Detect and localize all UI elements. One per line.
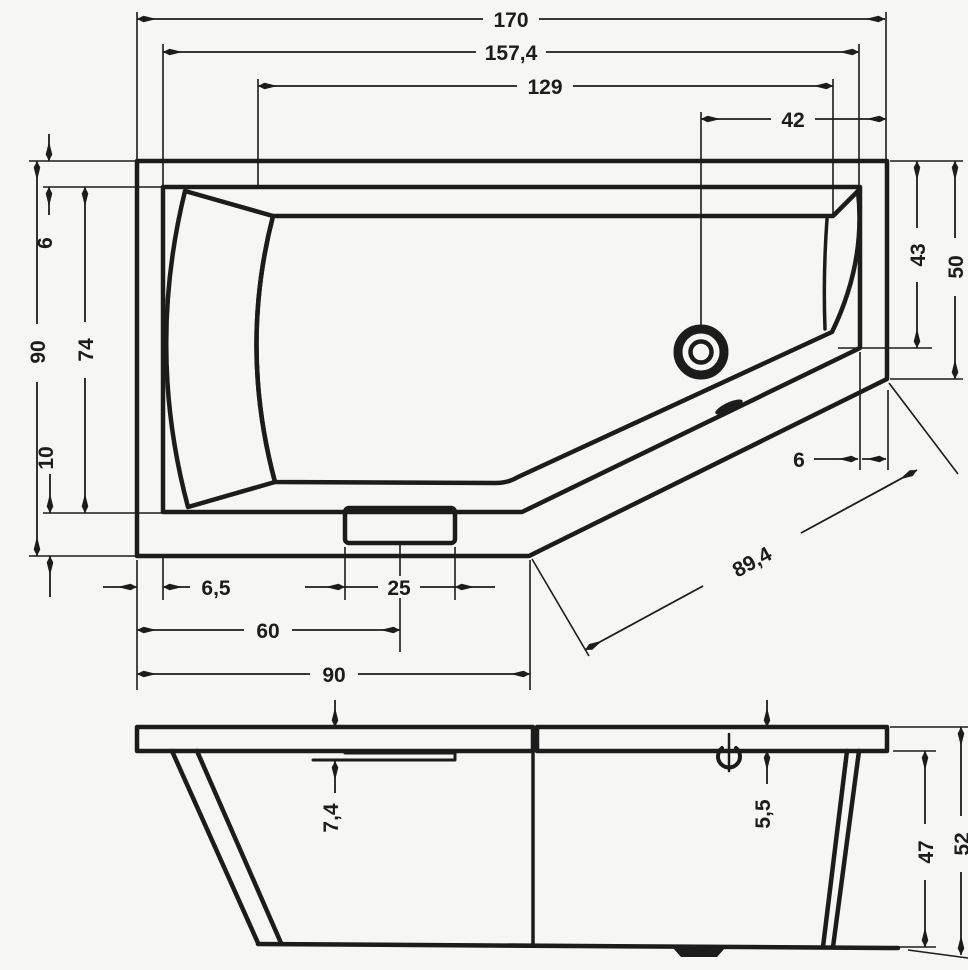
plan-view	[137, 161, 887, 556]
dim-60-label: 60	[256, 620, 279, 643]
dim-plate-center: 60	[137, 619, 400, 643]
dim-170-label: 170	[493, 9, 528, 32]
drain-inner-ring	[691, 342, 712, 363]
dim-157-label: 157,4	[485, 42, 538, 65]
dim-43-label: 43	[907, 243, 930, 266]
dim-6-left-label: 6	[34, 237, 57, 249]
rim-band-left	[137, 727, 533, 751]
dim-overall-length: 170	[137, 8, 885, 32]
dim-10-label: 10	[35, 446, 58, 469]
dim-overall-height: 52	[950, 727, 968, 955]
dim-65-label: 6,5	[201, 577, 231, 600]
dim-rim-bottom: 10	[35, 446, 58, 597]
dim-rim-offset-bottom: 6,5	[103, 577, 231, 600]
drain-outlet-bump	[673, 948, 725, 957]
bathtub-dimension-drawing: 170 157,4 129 42 90 6	[0, 0, 968, 970]
technical-drawing-page: 170 157,4 129 42 90 6	[0, 0, 968, 970]
dim-74-side-label: 7,4	[320, 803, 343, 833]
dim-body-height: 47	[914, 751, 938, 947]
dim-42-label: 42	[781, 109, 804, 132]
rim-band-right	[537, 727, 887, 751]
dim-55-label: 5,5	[752, 799, 775, 829]
dim-47-label: 47	[915, 840, 938, 863]
dim-rim-height: 5,5	[752, 700, 775, 829]
dim-basin-width: 74	[74, 187, 98, 513]
headrest-outline	[166, 191, 275, 507]
side-dimensions: 7,4 5,5 47 52	[320, 700, 968, 958]
left-panel-inner-slant	[197, 751, 281, 943]
dim-90-bottom-label: 90	[322, 664, 345, 687]
dim-diagonal-rim-width: 6	[793, 449, 886, 472]
dim-25-label: 25	[387, 577, 411, 600]
dim-74-label: 74	[75, 338, 98, 362]
dim-inner-rim-length: 157,4	[163, 41, 859, 65]
dim-6-diagonal-label: 6	[793, 449, 805, 472]
dim-diagonal-edge: 89,4	[585, 470, 917, 650]
dim-recess-depth: 7,4	[320, 700, 343, 833]
side-view	[137, 727, 898, 957]
dim-plate-width: 25	[305, 576, 495, 600]
dim-90-left-label: 90	[27, 340, 50, 363]
dim-894-label: 89,4	[729, 542, 776, 582]
seat-inner-contour	[824, 219, 827, 329]
dim-end-width: 50	[944, 161, 968, 379]
base-line	[258, 944, 898, 948]
left-panel-outer-slant	[172, 751, 258, 943]
dim-50-label: 50	[945, 255, 968, 278]
dim-basin-end-height: 43	[906, 161, 930, 348]
dim-overall-width: 90	[26, 161, 50, 556]
extension-lines	[29, 12, 963, 690]
dim-52-label: 52	[951, 832, 968, 855]
drain-outer-ring	[678, 329, 724, 375]
dim-straight-front: 90	[137, 663, 530, 687]
dim-basin-length: 129	[258, 75, 833, 99]
dim-129-label: 129	[527, 76, 562, 99]
